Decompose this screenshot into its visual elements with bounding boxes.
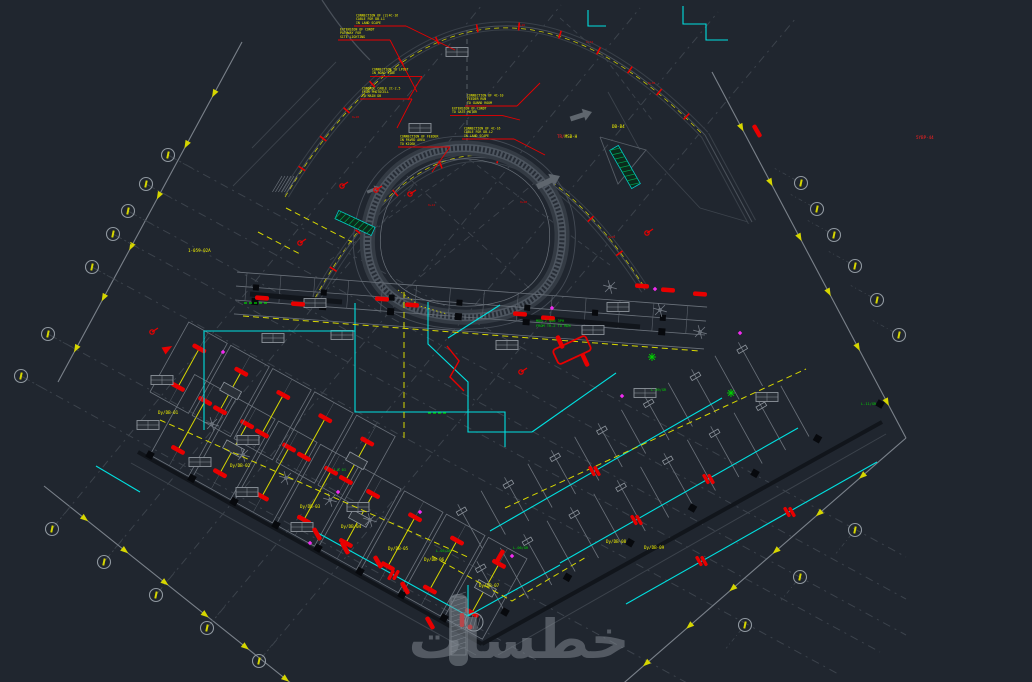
svg-text:0+26: 0+26	[518, 23, 525, 27]
svg-text:J-B 01: J-B 01	[333, 468, 346, 472]
boundary-arrow-icon	[209, 89, 218, 99]
left-wing-rooms	[150, 322, 527, 639]
svg-text:SITE LIGHTING: SITE LIGHTING	[340, 35, 365, 39]
device-label: TR/MSB-H	[557, 134, 578, 139]
svg-text:TO GUARD ROOM: TO GUARD ROOM	[467, 101, 492, 105]
boundary-arrow-icon	[71, 344, 80, 354]
device-label: Dy/DB-03	[300, 504, 321, 509]
svg-text:L-11/GR: L-11/GR	[861, 402, 877, 406]
device-label: Dy/DB-05	[388, 546, 409, 551]
device-label: Dy/DB-09	[644, 545, 665, 550]
symbols	[137, 48, 778, 656]
device-label: Dy/DB-01	[158, 410, 179, 415]
svg-text:TO KIOSK: TO KIOSK	[400, 142, 415, 146]
svg-text:MDB 2 RUN 3PH: MDB 2 RUN 3PH	[536, 319, 564, 323]
device-label: 5YBP-44	[916, 135, 934, 140]
device-label: Dy/DB-07	[479, 583, 500, 588]
grid-bubbles	[15, 149, 906, 668]
device-label: 1-059-02A	[188, 248, 211, 253]
boundary-arrow-icon	[182, 140, 191, 150]
svg-text:L-09/GR: L-09/GR	[651, 388, 667, 392]
svg-text:FROM TR-2 TO MDB: FROM TR-2 TO MDB	[536, 324, 571, 328]
svg-text:TO MAIN DB: TO MAIN DB	[362, 94, 381, 98]
road-bands: 0+260+320+380+120+080+040+20	[285, 0, 752, 300]
faint-structure	[233, 18, 748, 265]
boundary-arrow-icon	[853, 342, 862, 352]
red-fixtures	[150, 124, 763, 630]
device-label: Dy/DB-06	[424, 557, 445, 562]
cad-drawing-canvas[interactable]: 0+260+320+380+120+080+040+20TR/MSB-HDB-B…	[0, 0, 1032, 682]
device-label: Dy/DB-02	[230, 463, 251, 468]
boundary-arrow-icon	[737, 123, 746, 133]
boundary-arrow-icon	[99, 293, 108, 303]
boundary-arrow-icon	[824, 288, 833, 298]
svg-text:L-06/GR: L-06/GR	[513, 546, 529, 550]
svg-text:IN ROAD SIDE: IN ROAD SIDE	[372, 71, 395, 75]
svg-text:L-05/GR: L-05/GR	[436, 549, 452, 553]
boundary-arrow-icon	[766, 178, 775, 188]
boundary-arrow-icon	[127, 242, 136, 252]
svg-text:0+04: 0+04	[608, 235, 615, 239]
device-label: DB-B4	[612, 124, 625, 129]
hatched-strip	[610, 145, 641, 188]
road-arrow-icon	[568, 106, 593, 125]
cad-viewport[interactable]: 0+260+320+380+120+080+040+20TR/MSB-HDB-B…	[0, 0, 1032, 682]
svg-text:IN LAND SCAPE: IN LAND SCAPE	[464, 134, 489, 138]
circuit-ticks	[387, 465, 796, 580]
boundary-arrow-icon	[795, 233, 804, 243]
boundary-arrow-icon	[281, 674, 291, 682]
svg-text:TO GATE MOTOR: TO GATE MOTOR	[452, 110, 477, 114]
svg-text:0+12: 0+12	[428, 203, 435, 207]
svg-text:IN LAND SCAPE: IN LAND SCAPE	[356, 21, 381, 25]
svg-text:0+20: 0+20	[352, 115, 359, 119]
svg-text:0+38: 0+38	[648, 81, 655, 85]
device-label: Dy/DB-08	[606, 539, 627, 544]
device-label: Dy/DB-04	[341, 524, 362, 529]
